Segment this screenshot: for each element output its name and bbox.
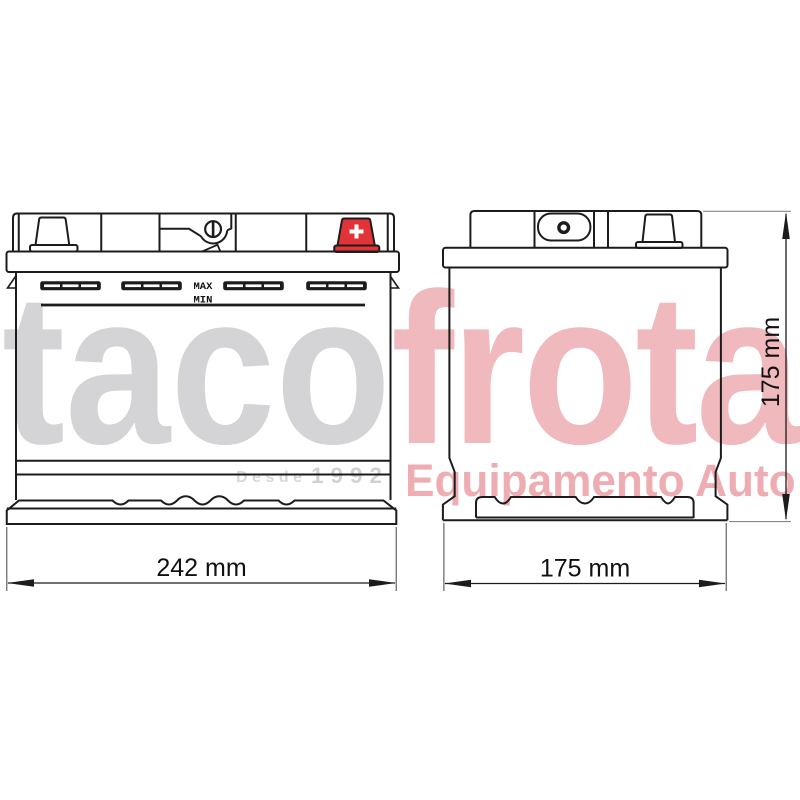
svg-text:175 mm: 175 mm [540,555,630,583]
svg-text:MAX: MAX [194,281,214,293]
svg-text:175 mm: 175 mm [757,317,785,407]
svg-text:242 mm: 242 mm [156,554,246,582]
